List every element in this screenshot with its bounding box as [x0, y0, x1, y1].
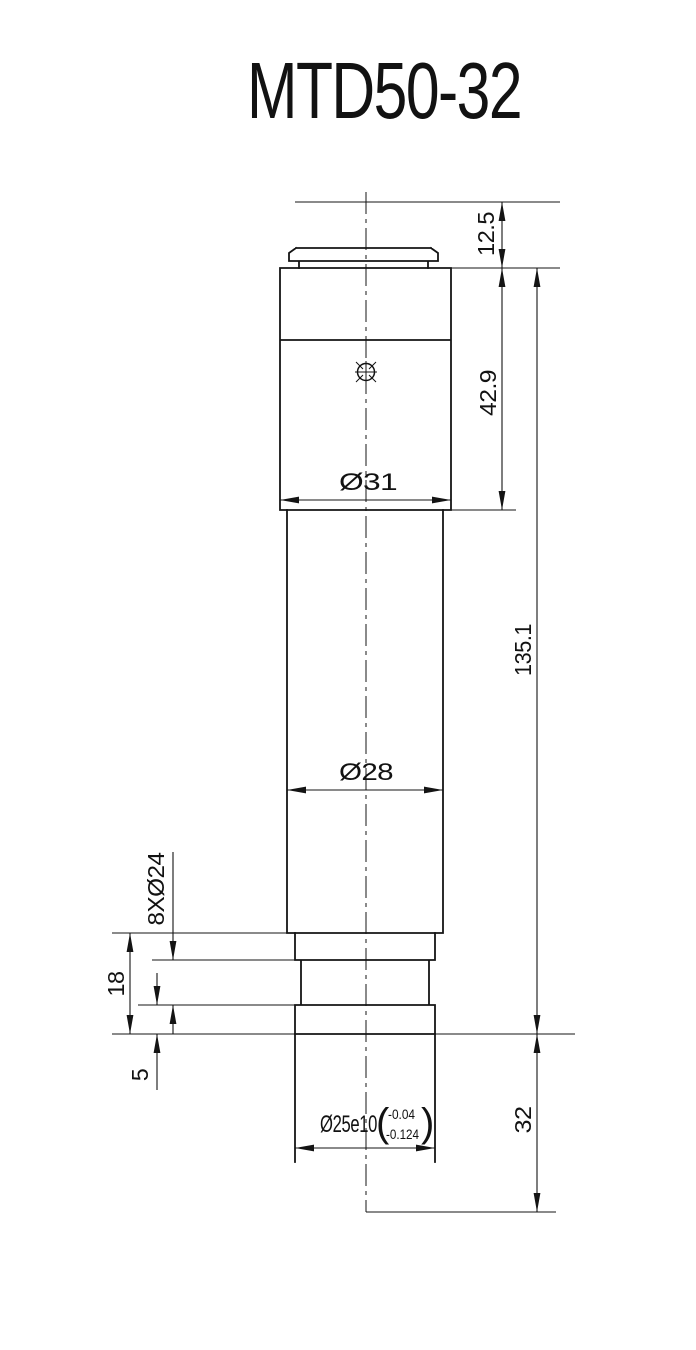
dim-overall-body-height-label: 135.1 [510, 624, 536, 676]
tolerance-lower: -0.124 [386, 1126, 419, 1142]
dim-upper-body-height-label: 42.9 [475, 370, 501, 416]
dim-cap-height-label: 12.5 [473, 212, 499, 256]
set-screw-hole-ticks [355, 361, 377, 383]
arrowheads [154, 986, 161, 1053]
dim-upper-body-diameter-label: Ø31 [339, 469, 397, 496]
dim-flange-total-height-label: 18 [103, 972, 129, 997]
technical-drawing-sheet: MTD50-32 12.5 42.9 [0, 0, 696, 1350]
dim-flange-total-height: 18 [103, 933, 133, 1034]
dim-insert-diameter-label: Ø25e10 [320, 1111, 377, 1138]
part-outline-insert-cylinder [295, 1034, 435, 1162]
part-outline-top-cap [289, 248, 438, 268]
dim-insert-diameter: Ø25e10 ( -0.04 -0.124 ) [295, 1101, 435, 1151]
extension-lines [112, 202, 575, 1034]
dim-tube-diameter-label: Ø28 [339, 759, 393, 786]
dim-upper-body-height: 42.9 [475, 268, 505, 510]
dim-tube-diameter: Ø28 [287, 759, 443, 793]
set-screw-hole [355, 361, 377, 383]
arrowheads [170, 941, 177, 1024]
dim-flange-pattern-label: 8XØ24 [143, 852, 169, 926]
tolerance-paren-close: ) [421, 1101, 434, 1145]
dim-insert-length-label: 32 [510, 1107, 536, 1134]
part-outline-flange [295, 933, 435, 1034]
part-outline-tube [287, 510, 443, 933]
dim-overall-body-height: 135.1 [510, 268, 540, 1034]
tolerance-upper: -0.04 [388, 1106, 415, 1122]
drawing-title: MTD50-32 [247, 46, 521, 135]
dim-cap-height: 12.5 [473, 202, 505, 268]
drawing-canvas: MTD50-32 12.5 42.9 [0, 0, 696, 1350]
dim-insert-length: 32 [510, 1034, 540, 1212]
dim-flange-step-height: 5 [127, 973, 160, 1090]
dim-flange-step-height-label: 5 [127, 1069, 153, 1081]
part-outline [280, 248, 556, 1212]
dim-flange-pattern: 8XØ24 [143, 852, 176, 1034]
